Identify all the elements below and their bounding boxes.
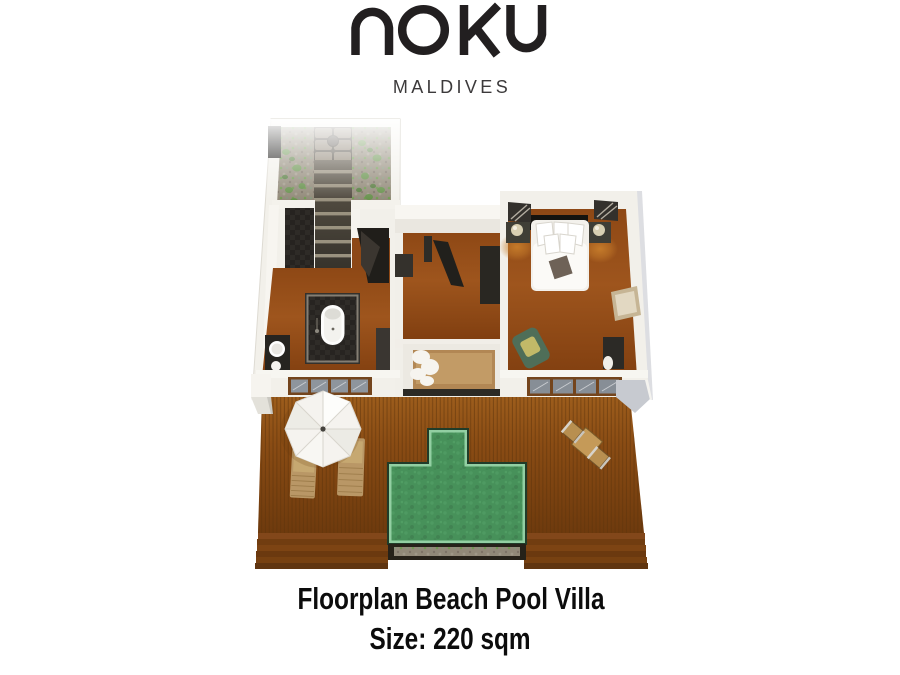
svg-text:Size: 220 sqm: Size: 220 sqm (370, 621, 531, 656)
svg-text:Floorplan Beach Pool Villa: Floorplan Beach Pool Villa (298, 581, 606, 616)
svg-text:MALDIVES: MALDIVES (393, 77, 511, 97)
